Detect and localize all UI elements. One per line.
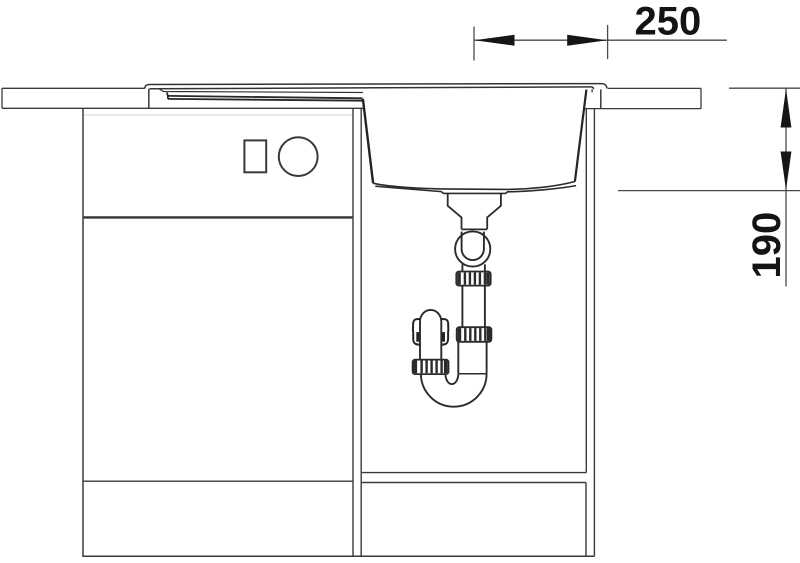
svg-text:250: 250 — [635, 0, 702, 43]
svg-text:190: 190 — [745, 212, 789, 279]
